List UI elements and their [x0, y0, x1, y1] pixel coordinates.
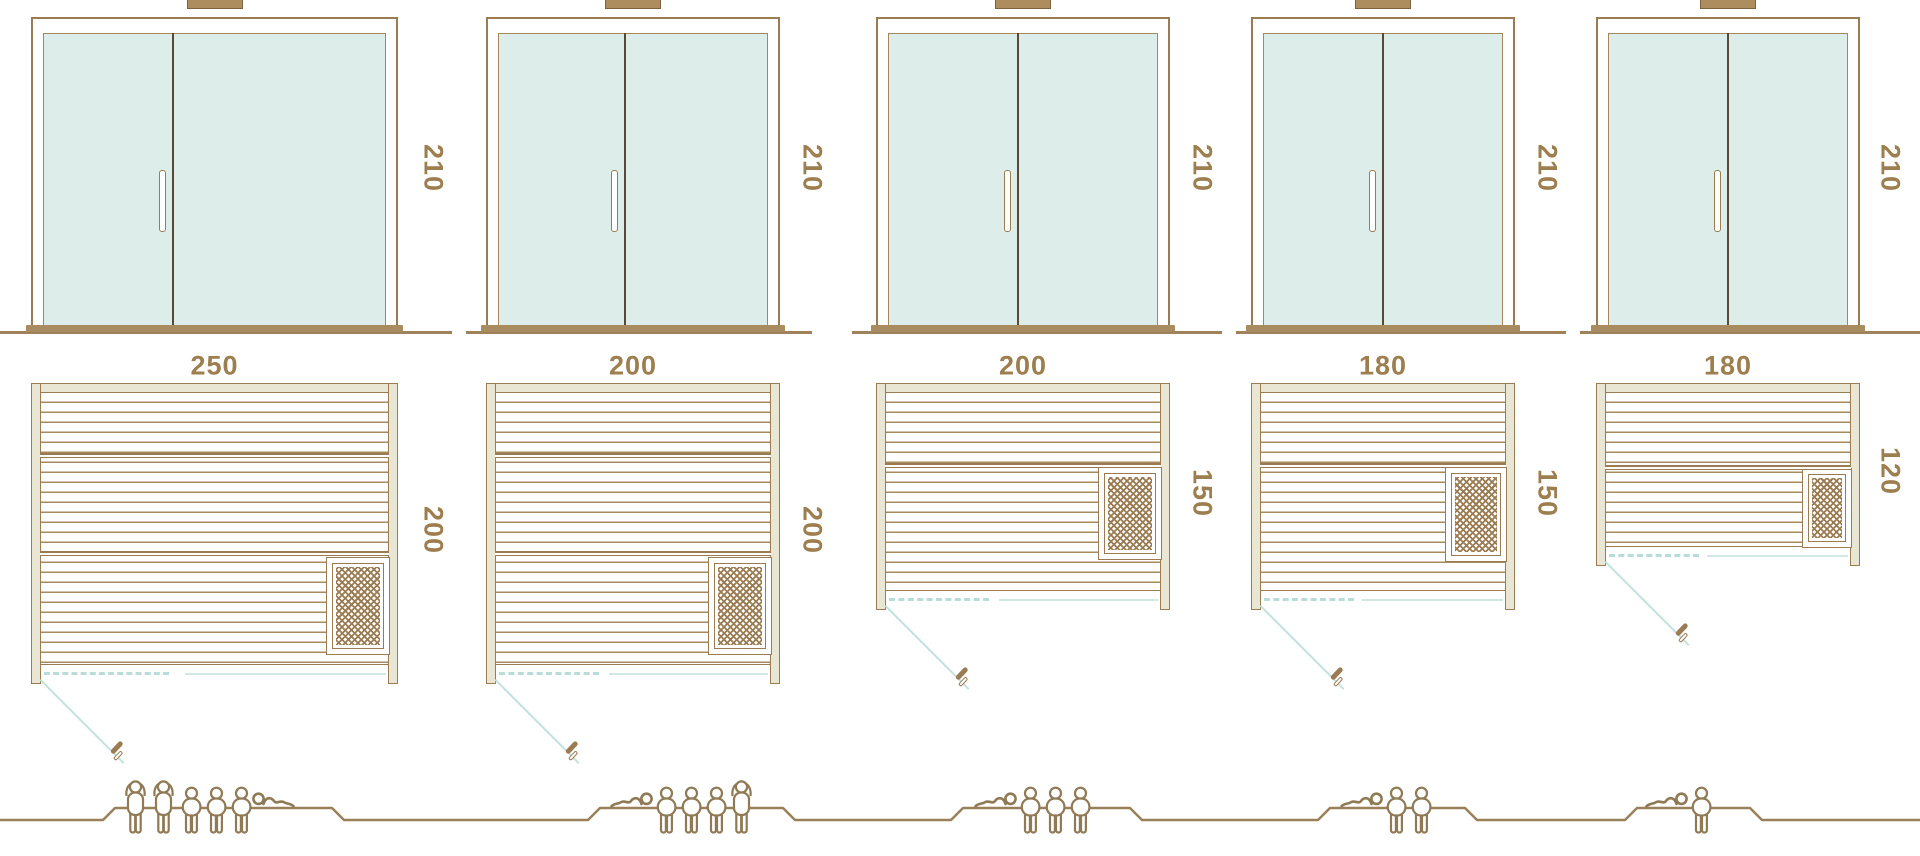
person-standing-icon: [126, 781, 144, 832]
capacity-figures-strip: [0, 740, 1920, 856]
person-seated-icon: [183, 788, 201, 833]
door-sill: [871, 325, 1175, 332]
sauna-unit-sauna-180x120: 180 210 120: [1596, 0, 1860, 856]
width-dimension-label: 200: [999, 351, 1047, 382]
person-seated-icon: [658, 788, 676, 833]
heater-icon: [332, 563, 384, 649]
door-handle-icon: [1714, 170, 1721, 232]
glass-door-left-panel: [888, 33, 1018, 326]
height-dimension-label: 210: [418, 144, 449, 192]
door-handle-icon: [1004, 170, 1011, 232]
plan-wall-top: [876, 383, 1170, 393]
plan-wall-left: [1251, 383, 1261, 610]
person-seated-icon: [208, 788, 226, 833]
glass-door-right-panel: [1728, 33, 1848, 326]
person-standing-icon: [154, 781, 172, 832]
ground-line-with-platforms: [0, 808, 1920, 820]
plan-wall-left: [486, 383, 496, 684]
roof-vent-icon: [605, 0, 661, 9]
roof-vent-icon: [995, 0, 1051, 9]
door-meeting-stile-line: [624, 33, 626, 326]
heater-enclosure: [1098, 467, 1162, 560]
plan-wall-top: [31, 383, 398, 393]
bench-edge-line: [40, 453, 389, 458]
roof-vent-icon: [187, 0, 243, 9]
person-lying-icon: [612, 794, 652, 807]
width-dimension-label: 200: [609, 351, 657, 382]
sauna-unit-sauna-200x150: 200 210 150: [876, 0, 1170, 856]
door-handle-icon: [611, 170, 618, 232]
bench-edge-line: [1260, 463, 1506, 468]
glass-front-line: [1707, 555, 1848, 557]
door-opening-dashed-line: [1609, 554, 1699, 557]
door-handle-icon: [1369, 170, 1376, 232]
glass-door-area: [1608, 33, 1848, 326]
glass-front-line: [999, 599, 1158, 601]
person-seated-icon: [233, 788, 251, 833]
sauna-size-comparison-diagram: 250 210 200: [0, 0, 1920, 856]
depth-dimension-label: 200: [418, 506, 449, 554]
width-dimension-label: 180: [1359, 351, 1407, 382]
door-sill: [481, 325, 785, 332]
front-elevation-drawing: [1251, 17, 1515, 330]
person-seated-icon: [1413, 788, 1431, 833]
heater-icon: [1451, 473, 1501, 556]
glass-door-left-panel: [1608, 33, 1728, 326]
capacity-group-sauna-180x150: [1342, 788, 1431, 833]
heater-enclosure: [1445, 467, 1507, 562]
person-lying-icon: [1342, 794, 1382, 807]
floor-plan-drawing: [486, 383, 780, 677]
heater-crosshatch: [1108, 477, 1152, 550]
glass-door-left-panel: [1263, 33, 1383, 326]
swing-door-handle-icon: [955, 664, 975, 685]
bench-edge-line: [495, 453, 771, 458]
heater-crosshatch: [336, 567, 380, 645]
bench-edge-line: [40, 551, 389, 556]
glass-door-right-panel: [1018, 33, 1158, 326]
roof-vent-icon: [1355, 0, 1411, 9]
depth-dimension-label: 150: [1532, 469, 1563, 517]
heater-crosshatch: [1455, 477, 1497, 552]
plan-wall-top: [486, 383, 780, 393]
width-dimension-label: 250: [190, 351, 238, 382]
heater-crosshatch: [1812, 478, 1842, 538]
floor-plan-drawing: [1596, 383, 1860, 559]
door-opening-dashed-line: [499, 672, 599, 675]
glass-door-right-panel: [625, 33, 768, 326]
glass-door-area: [498, 33, 768, 326]
heater-enclosure: [708, 557, 772, 655]
person-lying-icon: [1647, 794, 1687, 807]
floor-plan-drawing: [31, 383, 398, 677]
glass-door-right-panel: [1383, 33, 1503, 326]
roof-vent-icon: [1700, 0, 1756, 9]
floor-plan-drawing: [876, 383, 1170, 603]
height-dimension-label: 210: [797, 144, 828, 192]
plan-wall-top: [1596, 383, 1860, 393]
height-dimension-label: 210: [1875, 144, 1906, 192]
plan-wall-left: [876, 383, 886, 610]
plan-wall-left: [1596, 383, 1606, 566]
heater-enclosure: [1802, 468, 1852, 548]
sauna-unit-sauna-250x200: 250 210 200: [31, 0, 398, 856]
glass-door-area: [1263, 33, 1503, 326]
depth-dimension-label: 150: [1187, 469, 1218, 517]
door-meeting-stile-line: [1727, 33, 1729, 326]
person-seated-icon: [1022, 788, 1040, 833]
swing-door-handle-icon: [1330, 664, 1350, 685]
heater-icon: [714, 563, 766, 649]
glass-front-line: [609, 673, 768, 675]
heater-enclosure: [326, 557, 390, 655]
height-dimension-label: 210: [1532, 144, 1563, 192]
person-seated-icon: [1072, 788, 1090, 833]
person-standing-icon: [732, 781, 750, 832]
glass-front-line: [185, 673, 386, 675]
width-dimension-label: 180: [1704, 351, 1752, 382]
person-seated-icon: [683, 788, 701, 833]
door-handle-icon: [159, 170, 166, 232]
door-opening-dashed-line: [889, 598, 989, 601]
person-seated-icon: [1047, 788, 1065, 833]
front-elevation-drawing: [1596, 17, 1860, 330]
door-meeting-stile-line: [1382, 33, 1384, 326]
heater-icon: [1104, 473, 1156, 554]
sauna-unit-sauna-180x150: 180 210 150: [1251, 0, 1515, 856]
heater-crosshatch: [718, 567, 762, 645]
plan-wall-left: [31, 383, 41, 684]
glass-door-area: [888, 33, 1158, 326]
person-seated-icon: [1388, 788, 1406, 833]
bench-edge-line: [885, 463, 1161, 468]
front-elevation-drawing: [486, 17, 780, 330]
person-seated-icon: [708, 788, 726, 833]
glass-door-left-panel: [43, 33, 173, 326]
glass-door-area: [43, 33, 386, 326]
glass-door-left-panel: [498, 33, 625, 326]
door-opening-dashed-line: [44, 672, 169, 675]
depth-dimension-label: 200: [797, 506, 828, 554]
people-layer: [126, 781, 1710, 832]
floor-plan-drawing: [1251, 383, 1515, 603]
door-opening-dashed-line: [1264, 598, 1354, 601]
height-dimension-label: 210: [1187, 144, 1218, 192]
heater-icon: [1808, 474, 1846, 542]
capacity-group-sauna-180x120: [1647, 788, 1711, 833]
person-lying-mirrored-icon: [253, 794, 293, 807]
front-elevation-drawing: [876, 17, 1170, 330]
door-sill: [1246, 325, 1520, 332]
plan-wall-top: [1251, 383, 1515, 393]
door-sill: [1591, 325, 1865, 332]
glass-front-line: [1362, 599, 1503, 601]
door-sill: [26, 325, 403, 332]
sauna-unit-sauna-200x200: 200 210 200: [486, 0, 780, 856]
person-lying-icon: [976, 794, 1016, 807]
bench-edge-line: [495, 551, 771, 556]
door-meeting-stile-line: [1017, 33, 1019, 326]
person-seated-icon: [1693, 788, 1711, 833]
depth-dimension-label: 120: [1875, 447, 1906, 495]
swing-door-handle-icon: [1675, 620, 1695, 641]
front-elevation-drawing: [31, 17, 398, 330]
door-meeting-stile-line: [172, 33, 174, 326]
glass-door-right-panel: [173, 33, 386, 326]
bench-edge-line: [1605, 465, 1851, 470]
capacity-group-sauna-200x150: [976, 788, 1090, 833]
